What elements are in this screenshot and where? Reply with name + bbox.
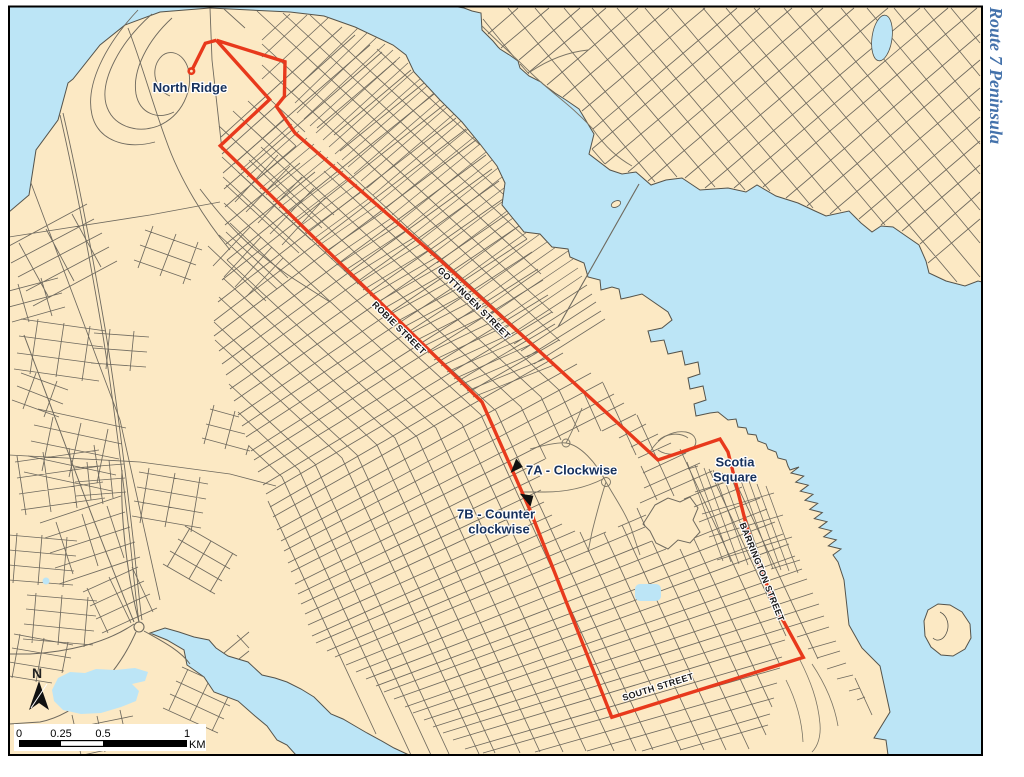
- svg-text:N: N: [32, 665, 42, 681]
- svg-text:Square: Square: [713, 470, 757, 485]
- svg-text:Scotia: Scotia: [715, 455, 755, 470]
- svg-text:0.5: 0.5: [95, 728, 110, 740]
- svg-text:North Ridge: North Ridge: [153, 80, 227, 95]
- svg-text:0.25: 0.25: [50, 728, 71, 740]
- svg-text:7B - Counter: 7B - Counter: [457, 507, 535, 522]
- svg-text:0: 0: [16, 728, 22, 740]
- svg-text:clockwise: clockwise: [468, 522, 529, 537]
- svg-text:Route 7 Peninsula: Route 7 Peninsula: [986, 6, 1006, 144]
- svg-text:7A - Clockwise: 7A - Clockwise: [526, 463, 617, 478]
- svg-text:KM: KM: [189, 739, 206, 751]
